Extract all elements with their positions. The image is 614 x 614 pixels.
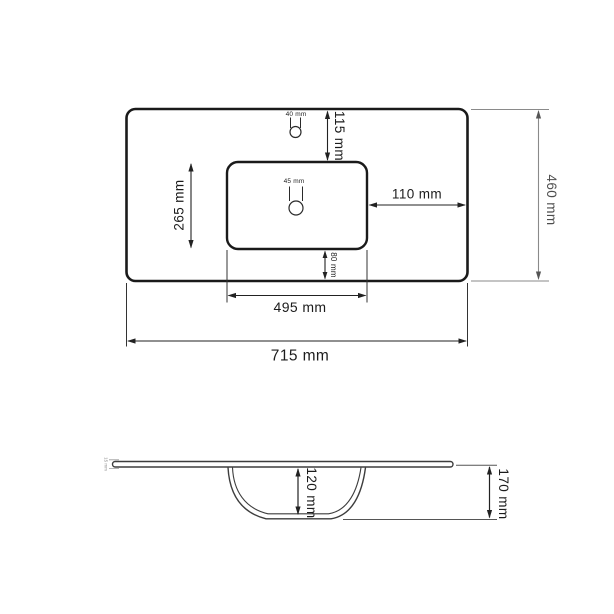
slab-profile (113, 462, 454, 468)
ext-lines-170 (343, 465, 497, 519)
faucet-hole (290, 127, 301, 138)
arrow-110-right (458, 202, 467, 207)
ext-lines-460 (471, 110, 549, 282)
arrow-80-bottom (323, 272, 328, 280)
basin-cutout-outline (227, 162, 367, 249)
arrow-715-left (127, 338, 136, 343)
arrow-170-top (487, 466, 492, 475)
arrow-115-bottom (325, 153, 330, 162)
drain-hole-diameter-ticks (290, 187, 303, 202)
ext-lines-715 (127, 283, 468, 347)
dim-label-offset-bottom-80mm: 80 mm (329, 252, 337, 277)
dim-label-offset-right-110mm: 110 mm (392, 187, 442, 201)
dim-label-faucet-hole-40mm: 40 mm (286, 111, 307, 118)
ext-lines-495 (227, 250, 367, 303)
dim-label-slab-thickness-15mm: 15 mm (103, 457, 108, 471)
dim-label-basin-depth-265mm: 265 mm (172, 179, 186, 230)
arrow-495-left (228, 293, 237, 298)
dim-label-bowl-depth-120mm: 120 mm (304, 467, 318, 518)
arrow-120-top (295, 468, 300, 477)
arrow-265-bottom (188, 240, 193, 249)
arrow-115-top (325, 111, 330, 120)
dim-label-overall-height-170mm: 170 mm (496, 468, 510, 519)
dim-label-overall-depth-460mm: 460 mm (544, 174, 558, 225)
dim-label-overall-width-715mm: 715 mm (271, 348, 329, 364)
arrow-495-right (358, 293, 367, 298)
arrow-170-bottom (487, 510, 492, 519)
technical-drawing: 40 mm 115 mm 45 mm 265 mm 110 mm 80 mm 4… (0, 0, 614, 614)
arrow-460-bottom (536, 272, 541, 281)
dim-label-offset-top-115mm: 115 mm (332, 111, 346, 161)
drain-hole (289, 201, 303, 215)
arrow-110-left (369, 202, 378, 207)
arrow-715-right (459, 338, 468, 343)
dim-label-drain-hole-45mm: 45 mm (284, 178, 305, 185)
arrow-460-top (536, 110, 541, 119)
dim-label-basin-width-495mm: 495 mm (274, 300, 327, 314)
arrow-265-top (188, 163, 193, 172)
arrow-80-top (323, 251, 328, 259)
